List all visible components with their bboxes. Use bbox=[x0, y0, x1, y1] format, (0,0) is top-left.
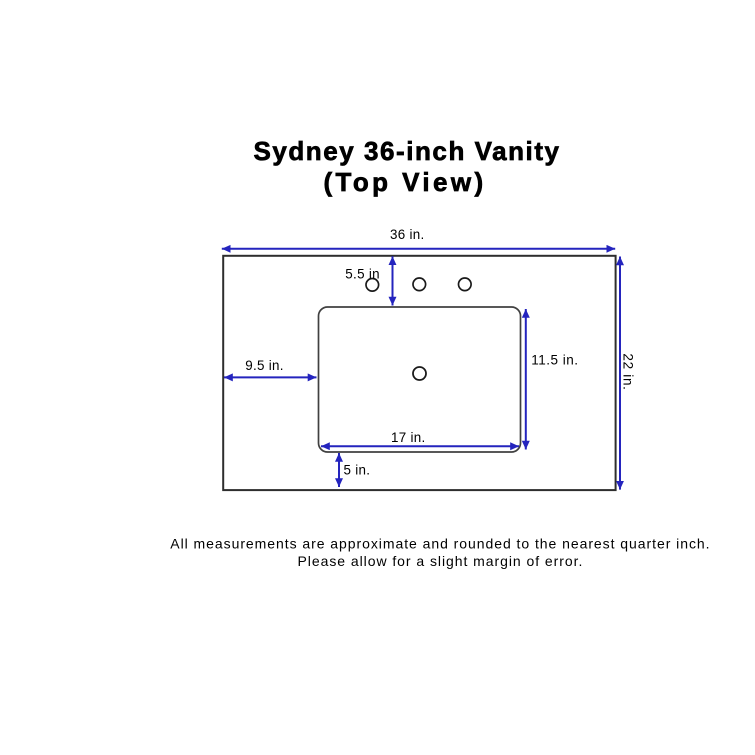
svg-text:5 in.: 5 in. bbox=[344, 463, 371, 478]
svg-text:Please allow for a slight marg: Please allow for a slight margin of erro… bbox=[298, 553, 584, 569]
svg-text:22 in.: 22 in. bbox=[621, 353, 636, 390]
svg-text:36 in.: 36 in. bbox=[390, 227, 425, 242]
svg-text:5.5 in: 5.5 in bbox=[345, 267, 380, 282]
svg-text:(Top View): (Top View) bbox=[323, 167, 486, 197]
svg-text:Sydney 36-inch Vanity: Sydney 36-inch Vanity bbox=[253, 136, 560, 166]
svg-text:All measurements are approxima: All measurements are approximate and rou… bbox=[170, 536, 710, 552]
svg-text:11.5 in.: 11.5 in. bbox=[531, 353, 578, 368]
svg-text:9.5 in.: 9.5 in. bbox=[245, 358, 284, 373]
svg-text:17 in.: 17 in. bbox=[391, 430, 426, 445]
